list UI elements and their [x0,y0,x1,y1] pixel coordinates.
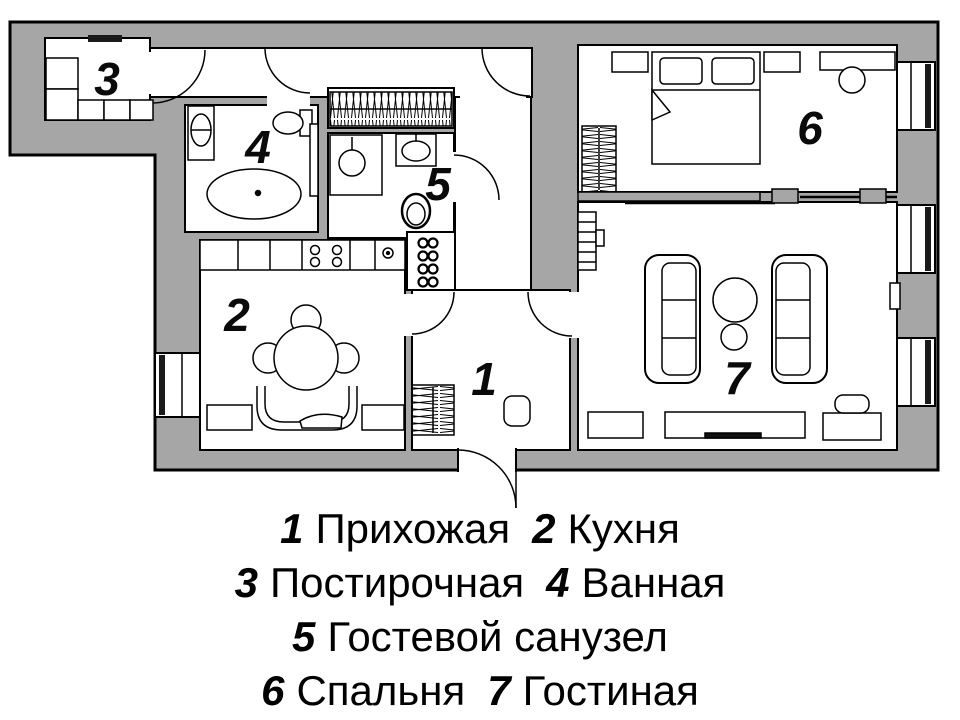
washer [46,58,78,89]
bathtub-icon [207,169,301,219]
legend-num: 6 [261,665,284,717]
nightstand [612,52,648,72]
legend-num: 3 [235,557,258,609]
legend: 1 Прихожая 2 Кухня 3 Постирочная 4 Ванна… [0,500,960,720]
legend-item: 2 Кухня [532,503,680,555]
legend-row-4: 6 Спальня 7 Гостиная [250,665,710,717]
desk [823,413,881,440]
floor-plan-svg: 1 2 3 4 5 6 7 [0,0,960,510]
legend-item: 4 Ванная [546,557,725,609]
cabinet [362,405,404,430]
room-label-6: 6 [797,102,823,154]
legend-item: 1 Прихожая [280,503,510,555]
sofa-right-icon [772,255,827,383]
legend-item: 7 Гостиная [487,665,699,717]
room-label-1: 1 [471,353,497,405]
room-label-4: 4 [244,121,271,173]
slide-handle [772,189,798,203]
side-table-icon [721,324,747,350]
legend-num: 2 [532,503,555,555]
legend-num: 7 [487,665,510,717]
legend-num: 5 [292,611,315,663]
legend-row-1: 1 Прихожая 2 Кухня [269,503,691,555]
sofa-left-icon [645,255,700,383]
legend-num: 4 [546,557,569,609]
shower-drain-icon [339,150,365,176]
bedroom-closet [582,126,616,192]
slide-handle [860,189,886,203]
legend-name: Кухня [567,503,679,555]
dresser [820,52,895,70]
cabinet [130,100,153,120]
window-bedroom [897,62,935,130]
shelf [310,124,318,196]
toilet-icon [273,112,303,134]
tv-icon [705,433,761,438]
vent-room-3 [88,35,122,42]
dining-table-icon [274,326,338,390]
room-label-2: 2 [223,289,250,341]
drain [256,191,261,196]
legend-name: Гостиная [523,665,699,717]
legend-item: 6 Спальня [261,665,465,717]
legend-item: 5 Гостевой санузел [292,611,668,663]
stool [839,67,865,93]
hall-wardrobe [412,385,454,435]
coffee-table-icon [713,278,757,322]
desk-chair [835,395,869,413]
legend-name: Прихожая [315,503,510,555]
legend-item: 3 Постирочная [235,557,525,609]
nightstand [764,52,800,72]
hall-closet [330,92,452,126]
window-living-1 [897,205,935,273]
room-label-7: 7 [724,352,752,404]
legend-name: Гостевой санузел [327,611,668,663]
floor-plan-page: 1 2 3 4 5 6 7 1 Прихожая 2 Кухня 3 Пости… [0,0,960,720]
cabinet [588,412,643,438]
pillow [660,58,702,84]
legend-num: 1 [280,503,303,555]
legend-name: Спальня [296,665,465,717]
pouf [504,396,530,426]
legend-row-2: 3 Постирочная 4 Ванная [224,557,737,609]
window-kitchen [155,353,200,417]
corridor-mid-floor [455,97,531,290]
legend-row-3: 5 Гостевой санузел [281,611,679,663]
wall-niche [890,283,900,309]
room-label-3: 3 [94,53,120,105]
legend-name: Ванная [582,557,726,609]
window-living-2 [897,338,935,406]
toilet-bowl [407,203,425,225]
kitchen-sink-icon [383,248,393,258]
dryer [46,89,78,120]
cabinet [207,405,252,430]
pillow [712,58,754,84]
legend-name: Постирочная [270,557,524,609]
room-label-5: 5 [425,158,452,210]
